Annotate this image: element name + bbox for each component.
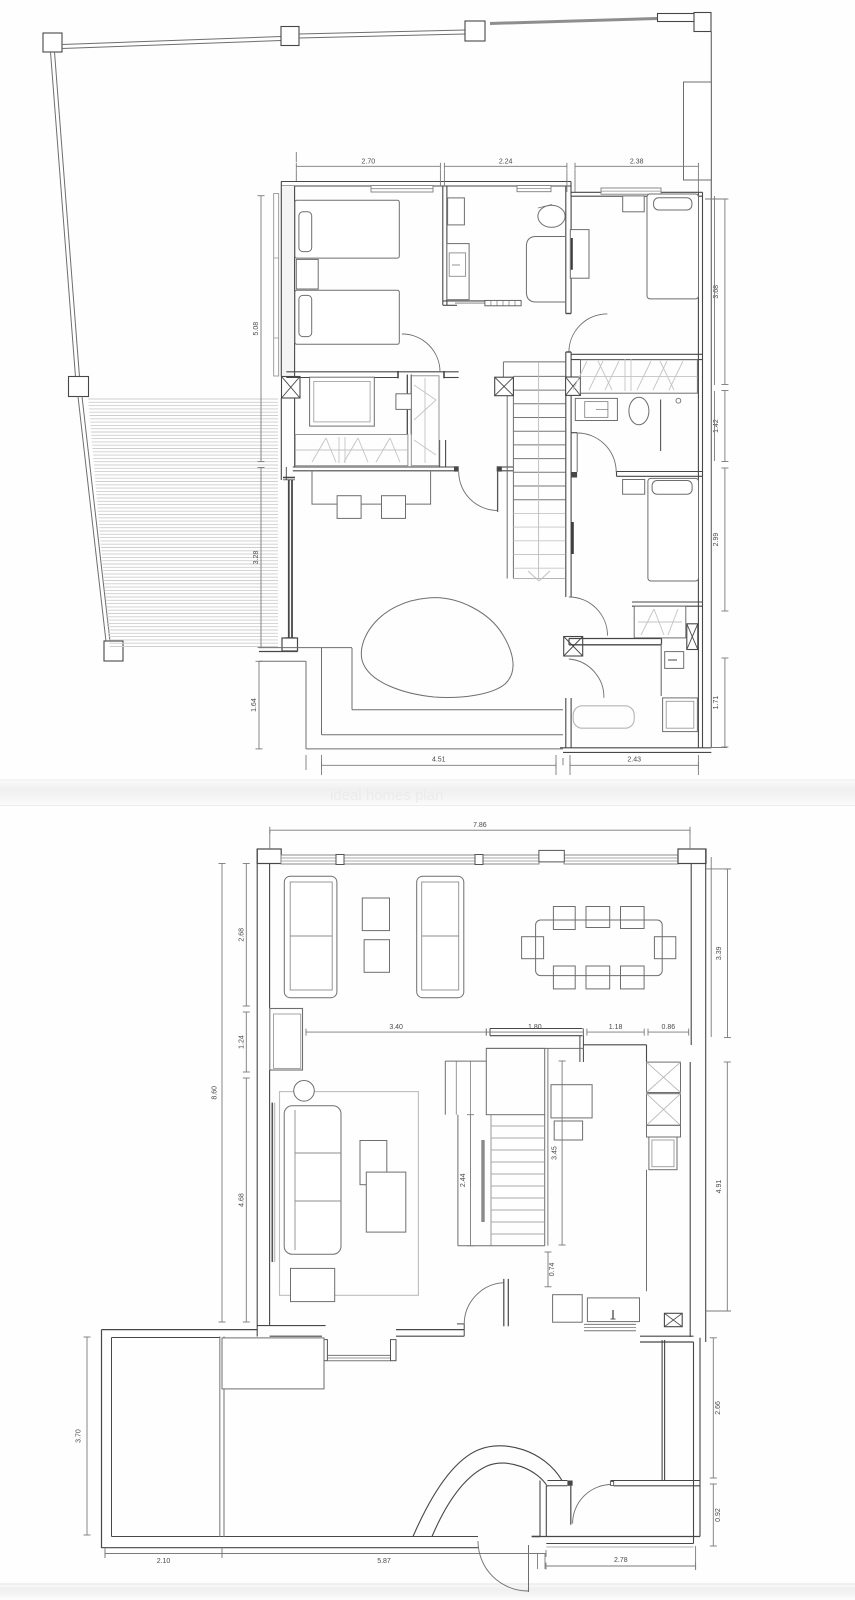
svg-text:4.91: 4.91 <box>716 1180 723 1194</box>
svg-text:2.68: 2.68 <box>238 928 245 942</box>
svg-text:7.86: 7.86 <box>473 822 487 829</box>
svg-text:5.08: 5.08 <box>253 322 260 336</box>
svg-text:2.44: 2.44 <box>460 1173 467 1187</box>
svg-text:1.64: 1.64 <box>251 698 258 712</box>
svg-text:2.70: 2.70 <box>362 158 376 165</box>
svg-text:0.92: 0.92 <box>715 1508 722 1522</box>
svg-text:2.38: 2.38 <box>630 158 644 165</box>
svg-text:1.80: 1.80 <box>528 1024 542 1031</box>
svg-text:3.45: 3.45 <box>552 1146 559 1160</box>
svg-text:0.74: 0.74 <box>549 1262 556 1276</box>
svg-text:0.86: 0.86 <box>662 1024 676 1031</box>
svg-text:1.24: 1.24 <box>238 1035 245 1049</box>
svg-text:2.66: 2.66 <box>715 1401 722 1415</box>
svg-text:3.70: 3.70 <box>76 1429 83 1443</box>
svg-text:2.43: 2.43 <box>627 757 641 764</box>
svg-text:3.40: 3.40 <box>389 1024 403 1031</box>
svg-text:3.39: 3.39 <box>716 946 723 960</box>
svg-text:3.28: 3.28 <box>253 551 260 565</box>
svg-text:2.10: 2.10 <box>157 1558 171 1565</box>
svg-text:5.87: 5.87 <box>377 1558 391 1565</box>
svg-text:4.68: 4.68 <box>238 1193 245 1207</box>
svg-text:2.24: 2.24 <box>499 158 513 165</box>
svg-text:1.18: 1.18 <box>609 1024 623 1031</box>
svg-text:4.51: 4.51 <box>432 757 446 764</box>
svg-text:8.60: 8.60 <box>212 1086 219 1100</box>
svg-text:2.78: 2.78 <box>614 1557 628 1564</box>
svg-text:ideal homes plan: ideal homes plan <box>330 787 443 804</box>
svg-text:1.71: 1.71 <box>713 696 720 710</box>
svg-text:2.99: 2.99 <box>713 533 720 547</box>
